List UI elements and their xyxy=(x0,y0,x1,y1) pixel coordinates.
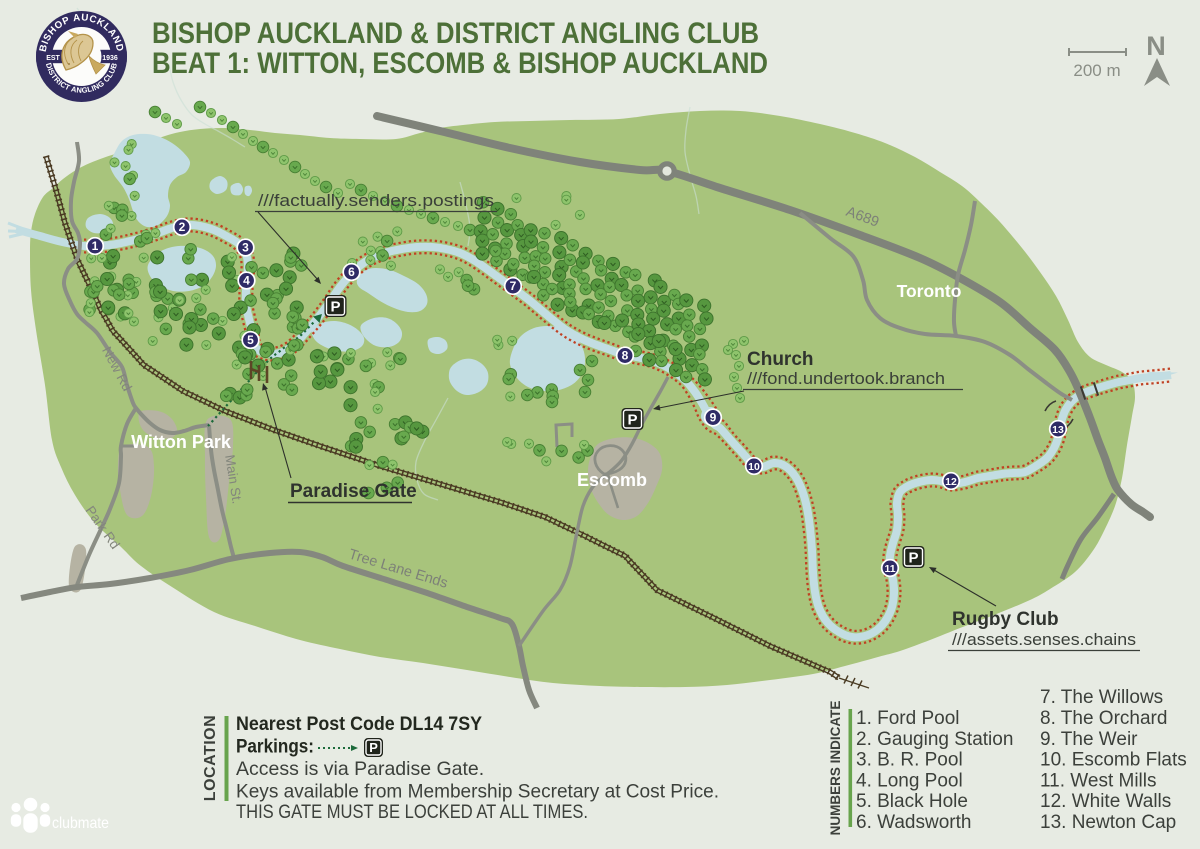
svg-text:Parkings:: Parkings: xyxy=(236,736,314,758)
svg-text:Access is via Paradise Gate.: Access is via Paradise Gate. xyxy=(236,758,484,780)
svg-text:Rugby Club: Rugby Club xyxy=(952,609,1059,630)
svg-text:Keys available from Membership: Keys available from Membership Secretary… xyxy=(236,781,719,803)
svg-text:BEAT 1: WITTON, ESCOMB & BISHO: BEAT 1: WITTON, ESCOMB & BISHOP AUCKLAND xyxy=(152,47,768,80)
svg-text:P: P xyxy=(369,740,378,755)
svg-text:6: 6 xyxy=(348,265,355,279)
svg-text:2: 2 xyxy=(179,220,186,234)
svg-text:11: 11 xyxy=(884,563,895,575)
svg-text:///factually.senders.postings: ///factually.senders.postings xyxy=(258,192,494,210)
svg-text:EST: EST xyxy=(46,55,60,62)
svg-text:9: 9 xyxy=(710,411,717,425)
svg-text:Toronto: Toronto xyxy=(897,281,962,301)
svg-text:8. The Orchard: 8. The Orchard xyxy=(1040,708,1167,729)
svg-text:P: P xyxy=(908,549,918,566)
svg-text:1936: 1936 xyxy=(102,55,118,62)
svg-text:8: 8 xyxy=(622,349,629,363)
svg-text:4: 4 xyxy=(243,274,250,288)
svg-text:Witton Park: Witton Park xyxy=(131,432,232,452)
svg-text:10: 10 xyxy=(748,461,760,473)
svg-text:10. Escomb Flats: 10. Escomb Flats xyxy=(1040,750,1187,771)
svg-text:THIS GATE MUST BE LOCKED AT AL: THIS GATE MUST BE LOCKED AT ALL TIMES. xyxy=(236,801,588,823)
svg-text:7: 7 xyxy=(510,279,517,293)
svg-text:13. Newton Cap: 13. Newton Cap xyxy=(1040,812,1176,833)
svg-text:1: 1 xyxy=(92,239,99,253)
svg-text:9. The Weir: 9. The Weir xyxy=(1040,729,1138,750)
svg-text:Nearest Post Code DL14 7SY: Nearest Post Code DL14 7SY xyxy=(236,713,482,735)
svg-text:LOCATION: LOCATION xyxy=(202,715,219,801)
svg-text:6. Wadsworth: 6. Wadsworth xyxy=(856,812,971,833)
svg-text:Paradise Gate: Paradise Gate xyxy=(290,481,417,502)
svg-text:13: 13 xyxy=(1052,424,1064,436)
svg-text:12. White Walls: 12. White Walls xyxy=(1040,791,1171,812)
svg-text:BISHOP AUCKLAND & DISTRICT ANG: BISHOP AUCKLAND & DISTRICT ANGLING CLUB xyxy=(152,17,759,50)
svg-text:///assets.senses.chains: ///assets.senses.chains xyxy=(952,631,1136,649)
svg-text:P: P xyxy=(330,298,340,315)
svg-text:NUMBERS INDICATE: NUMBERS INDICATE xyxy=(828,701,843,836)
svg-text:7. The Willows: 7. The Willows xyxy=(1040,687,1163,708)
svg-text:N: N xyxy=(1146,31,1166,61)
svg-text:Church: Church xyxy=(747,349,814,370)
svg-text:11. West Mills: 11. West Mills xyxy=(1040,770,1157,791)
svg-text:3. B. R. Pool: 3. B. R. Pool xyxy=(856,750,963,771)
svg-text:2. Gauging Station: 2. Gauging Station xyxy=(856,729,1013,750)
svg-text:clubmate: clubmate xyxy=(52,815,109,832)
svg-text:///fond.undertook.branch: ///fond.undertook.branch xyxy=(747,370,945,388)
svg-text:200 m: 200 m xyxy=(1073,61,1120,80)
svg-text:Escomb: Escomb xyxy=(577,470,647,490)
svg-text:5: 5 xyxy=(247,333,254,347)
svg-text:4. Long Pool: 4. Long Pool xyxy=(856,770,963,791)
svg-text:5. Black Hole: 5. Black Hole xyxy=(856,791,968,812)
svg-text:P: P xyxy=(627,411,637,428)
svg-text:12: 12 xyxy=(945,476,957,488)
svg-text:3: 3 xyxy=(242,241,249,255)
svg-text:1. Ford Pool: 1. Ford Pool xyxy=(856,708,960,729)
